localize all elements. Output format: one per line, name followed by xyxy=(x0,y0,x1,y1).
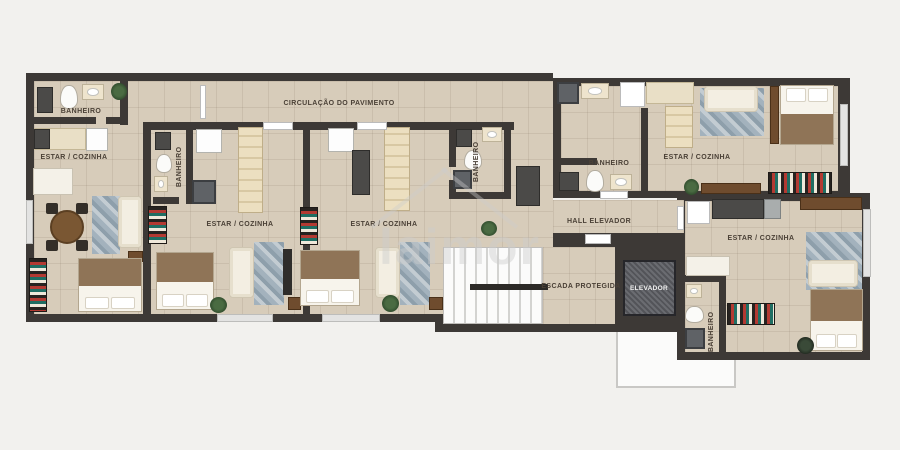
unit-d-living-label: ESTAR / COZINHA xyxy=(647,154,747,162)
window xyxy=(26,200,33,244)
rug xyxy=(254,242,284,305)
corridor-label: CIRCULAÇÃO DO PAVIMENTO xyxy=(239,100,439,108)
utility-cabinet xyxy=(516,166,540,206)
shower xyxy=(557,82,579,104)
sofa xyxy=(118,196,142,248)
sofa xyxy=(704,86,758,112)
toilet xyxy=(60,85,78,109)
bookshelf xyxy=(148,206,167,244)
shower xyxy=(192,180,216,204)
washing-machine xyxy=(456,129,472,147)
sink-vanity xyxy=(686,284,702,298)
plant xyxy=(684,179,699,195)
sink-vanity xyxy=(610,174,632,190)
stove xyxy=(34,129,50,149)
fridge xyxy=(86,128,108,151)
side-table xyxy=(429,297,443,310)
fridge xyxy=(196,129,222,153)
double-bed xyxy=(300,250,360,306)
plant xyxy=(797,337,814,354)
washing-machine xyxy=(155,132,171,150)
chair xyxy=(76,240,88,251)
plant xyxy=(210,297,227,313)
tv-sideboard xyxy=(800,197,862,210)
door-threshold xyxy=(585,234,611,244)
double-bed xyxy=(810,289,863,351)
unit-b-bathroom-label: BANHEIRO xyxy=(176,132,184,202)
kitchen-sink-counter xyxy=(712,199,764,219)
double-bed xyxy=(156,252,214,310)
shower xyxy=(685,328,705,349)
chair xyxy=(46,240,58,251)
furniture-layer xyxy=(0,0,900,450)
rug xyxy=(400,242,430,305)
door-threshold xyxy=(600,191,628,199)
chair xyxy=(46,203,58,214)
bookshelf xyxy=(727,303,775,325)
door-threshold xyxy=(357,122,387,130)
window xyxy=(863,209,871,277)
sink-vanity xyxy=(82,84,104,100)
window xyxy=(217,314,273,322)
sink-vanity xyxy=(482,127,502,142)
plant xyxy=(382,295,399,312)
unit-b-living-label: ESTAR / COZINHA xyxy=(190,221,290,229)
toilet xyxy=(586,170,604,192)
sink-vanity xyxy=(154,176,168,192)
door-leaf xyxy=(687,201,710,224)
unit-e-living-label: ESTAR / COZINHA xyxy=(711,235,811,243)
plant xyxy=(481,221,497,236)
tv-panel xyxy=(283,249,292,295)
bookshelf xyxy=(768,172,832,194)
kitchen-sink-counter xyxy=(352,150,370,195)
sofa xyxy=(229,247,254,298)
washing-machine xyxy=(559,172,579,191)
hall-elevator-label: HALL ELEVADOR xyxy=(549,218,649,226)
kitchen-cabinets xyxy=(665,106,693,148)
unit-c-bathroom-label: BANHEIRO xyxy=(473,127,481,197)
unit-a-living-label: ESTAR / COZINHA xyxy=(24,154,124,162)
sofa xyxy=(808,260,858,287)
bed-bench xyxy=(770,86,779,144)
window xyxy=(840,104,848,166)
unit-e-bathroom-label: BANHEIRO xyxy=(708,297,716,367)
bookshelf xyxy=(300,207,318,245)
plant xyxy=(111,83,127,100)
door-threshold xyxy=(263,122,293,130)
dining-table xyxy=(50,210,84,244)
door-threshold xyxy=(677,206,684,230)
window xyxy=(322,314,380,322)
protected-stairs-label: ESCADA PROTEGIDA xyxy=(531,283,631,291)
toilet xyxy=(156,154,172,173)
elevator-label: ELEVADOR xyxy=(620,285,678,292)
fridge xyxy=(764,199,781,219)
sofa xyxy=(375,247,400,298)
sink-vanity xyxy=(581,83,609,99)
unit-d-bathroom-label: BANHEIRO xyxy=(574,160,644,168)
toilet xyxy=(685,306,704,323)
desk xyxy=(33,168,73,195)
double-bed xyxy=(780,85,834,145)
tv-sideboard xyxy=(701,183,761,194)
chair xyxy=(76,203,88,214)
double-bed xyxy=(78,258,142,312)
rug xyxy=(92,196,120,254)
kitchen-counter xyxy=(646,82,694,104)
unit-a-bathroom-label: BANHEIRO xyxy=(46,108,116,116)
kitchen-cabinets xyxy=(238,127,263,213)
door-leaf xyxy=(620,82,645,107)
cabinet xyxy=(686,256,730,276)
fridge xyxy=(328,128,354,152)
bookshelf xyxy=(29,258,47,312)
door-leaf xyxy=(200,85,206,119)
floor-plan: CIRCULAÇÃO DO PAVIMENTO BANHEIRO ESTAR /… xyxy=(0,0,900,450)
unit-c-living-label: ESTAR / COZINHA xyxy=(334,221,434,229)
